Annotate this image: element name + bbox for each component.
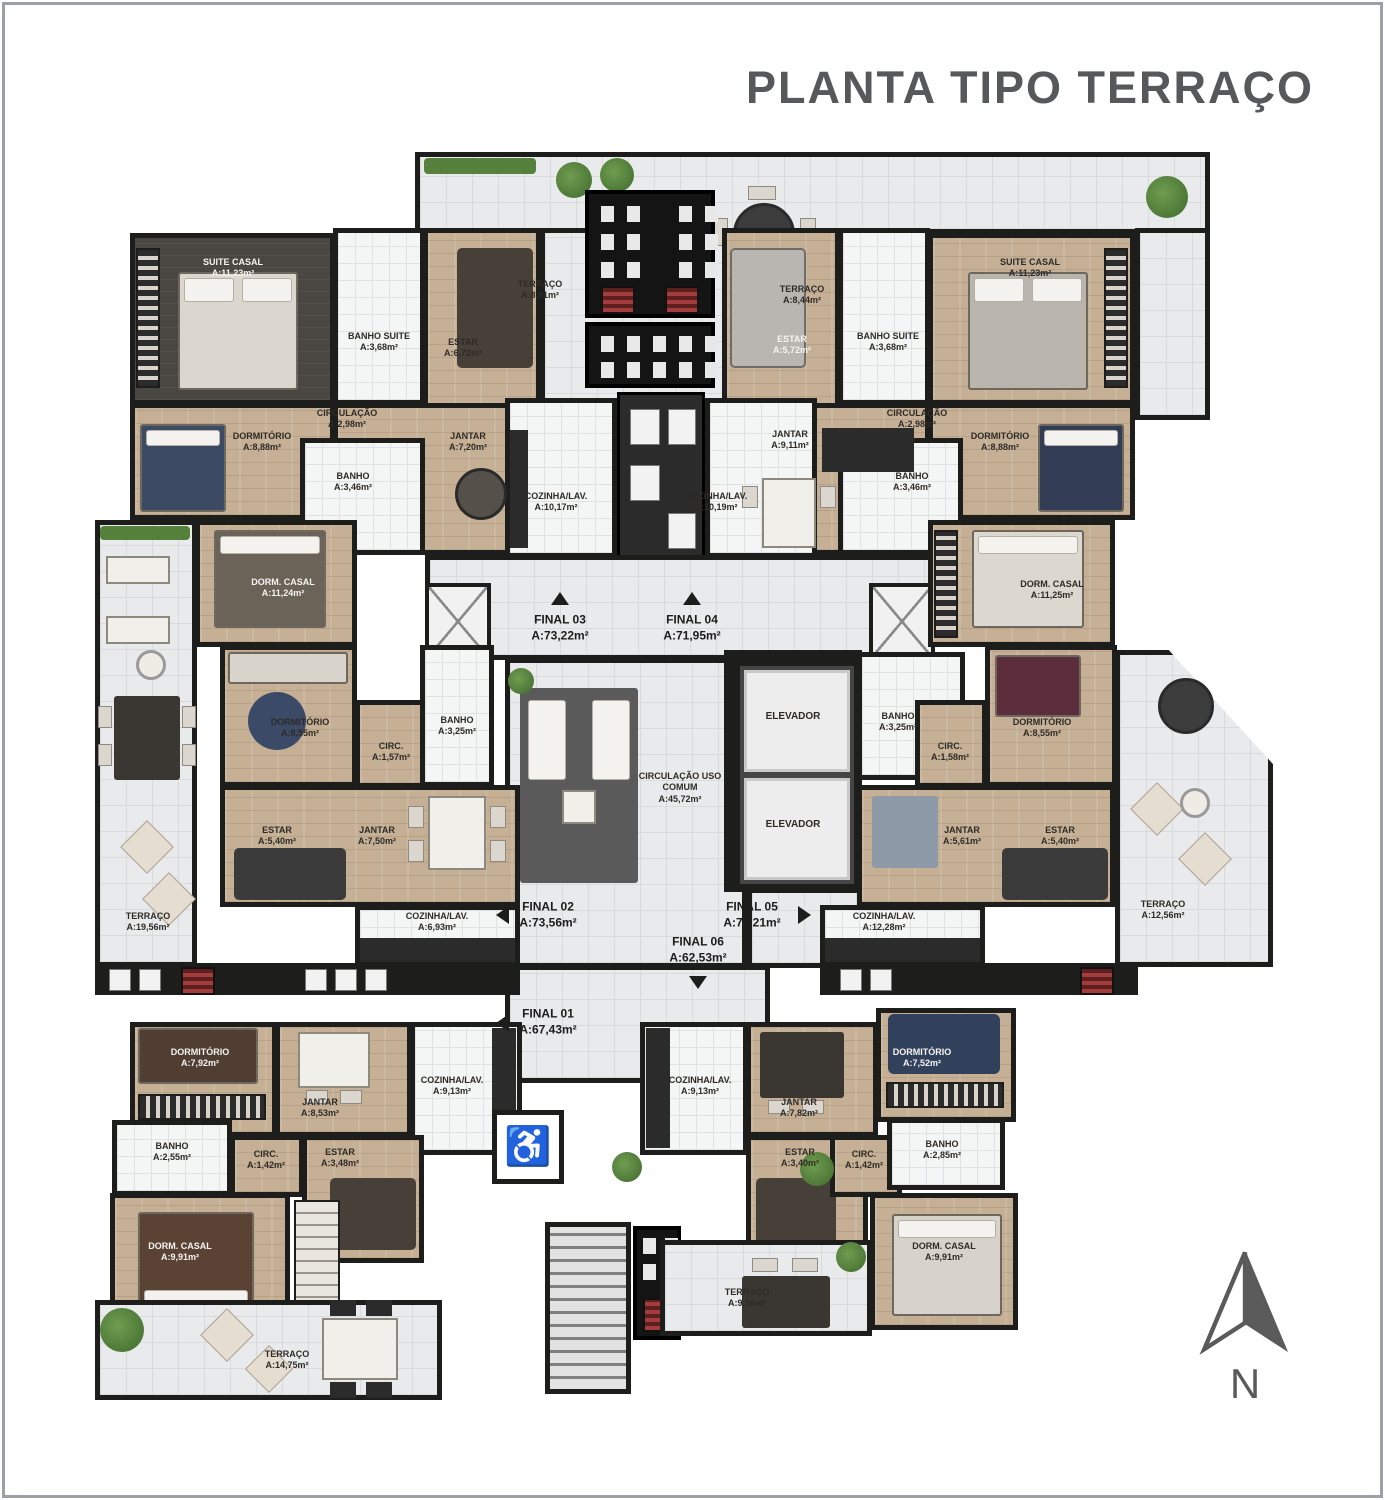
kitchen-counter [646, 1028, 670, 1148]
tree [600, 158, 634, 192]
grill [181, 967, 215, 995]
pillow [1032, 278, 1082, 302]
appliance [335, 969, 357, 991]
arrow-final-04 [683, 592, 701, 605]
label-cozinha-06: COZINHA/LAV.A:9,13m² [669, 1075, 732, 1098]
side-table [1180, 788, 1210, 818]
chair [98, 706, 112, 728]
chair [330, 1300, 356, 1316]
accessible-wc: ♿ [492, 1110, 564, 1184]
label-dormitorio-02: DORMITÓRIOA:8,55m² [271, 717, 330, 740]
label-banho-02: BANHOA:3,25m² [438, 715, 476, 738]
pillow [146, 430, 220, 446]
room-banho-suite-03 [333, 228, 425, 405]
label-dormitorio-05: DORMITÓRIOA:8,55m² [1013, 717, 1072, 740]
chair [340, 1090, 362, 1104]
label-circ-02: CIRC.A:1,57m² [372, 741, 410, 764]
bed-dormitorio-02 [228, 652, 348, 684]
sofa-01 [330, 1178, 416, 1250]
label-jantar-02: JANTARA:7,50m² [358, 825, 396, 848]
chair [408, 806, 424, 828]
tree [1146, 176, 1188, 218]
planter [100, 526, 190, 540]
bbq-module [585, 322, 715, 388]
terrace-table-01 [322, 1318, 398, 1380]
chair [98, 744, 112, 766]
appliance [305, 969, 327, 991]
kitchen-counter [825, 938, 980, 962]
arrow-final-06 [689, 976, 707, 989]
label-final-04: FINAL 04A:71,95m² [663, 612, 720, 643]
label-estar-03: ESTARA:6,72m² [444, 337, 482, 360]
chair [366, 1300, 392, 1316]
pillow [1044, 430, 1118, 446]
label-cozinha-03: COZINHA/LAV.A:10,17m² [525, 491, 588, 514]
label-estar-04: ESTARA:5,72m² [773, 334, 811, 357]
label-estar-01: ESTARA:3,48m² [321, 1147, 359, 1170]
label-terraco-04: TERRAÇOA:8,44m² [780, 284, 825, 307]
label-dorm-casal-06: DORM. CASALA:9,91m² [912, 1241, 976, 1264]
grill [601, 286, 635, 314]
lounger [106, 556, 170, 584]
service-wall-left [95, 963, 520, 995]
label-banho-suite-03: BANHO SUITEA:3,68m² [348, 331, 410, 354]
shaft [869, 583, 935, 660]
label-estar-05: ESTARA:5,40m² [1041, 825, 1079, 848]
dining-table-02 [428, 796, 486, 870]
label-final-05: FINAL 05A:70,21m² [723, 899, 780, 930]
label-terraco-03: TERRAÇOA:8,91m² [518, 279, 563, 302]
pillow [978, 536, 1078, 554]
pillow [242, 278, 292, 302]
label-dormitorio-01: DORMITÓRIOA:7,92m² [171, 1047, 230, 1070]
arrow-final-02 [496, 906, 509, 924]
label-terraco-05: TERRAÇOA:12,56m² [1141, 899, 1186, 922]
chair [182, 706, 196, 728]
appliance [840, 969, 862, 991]
room-banho-suite-04 [838, 228, 930, 405]
lounge-sofa [592, 700, 630, 780]
chair [330, 1382, 356, 1398]
chair [408, 840, 424, 862]
label-elevador-1: ELEVADOR [766, 711, 821, 724]
north-compass: N [1190, 1248, 1300, 1398]
label-dormitorio-03: DORMITÓRIOA:8,88m² [233, 431, 292, 454]
label-dorm-casal-01: DORM. CASALA:9,91m² [148, 1241, 212, 1264]
side-table [136, 650, 166, 680]
pillow [220, 536, 320, 554]
label-banho-05: BANHOA:3,25m² [879, 711, 917, 734]
label-final-01: FINAL 01A:67,43m² [519, 1006, 576, 1037]
north-arrow-icon [1190, 1248, 1300, 1358]
oven [630, 465, 660, 501]
sink [668, 513, 696, 549]
appliance [109, 969, 131, 991]
wardrobe [934, 530, 958, 638]
wardrobe [138, 1094, 266, 1120]
chair [182, 744, 196, 766]
label-jantar-04: JANTARA:9,11m² [771, 429, 809, 452]
appliance [870, 969, 892, 991]
chair [366, 1382, 392, 1398]
appliance [365, 969, 387, 991]
label-banho-06: BANHOA:2,85m² [923, 1139, 961, 1162]
grill [665, 286, 699, 314]
kitchen-counter [360, 938, 515, 962]
pillow [974, 278, 1024, 302]
wardrobe [136, 248, 160, 388]
label-cozinha-04: COZINHA/LAV.A:10,19m² [685, 491, 748, 514]
chair [748, 186, 776, 200]
wardrobe [1104, 248, 1128, 388]
service-wall-right [820, 963, 1138, 995]
lounge-sofa [528, 700, 566, 780]
arrow-final-05 [798, 906, 811, 924]
label-estar-02: ESTARA:5,40m² [258, 825, 296, 848]
bbq-grid [601, 206, 614, 222]
pillow [184, 278, 234, 302]
bed-dormitorio-05 [995, 655, 1081, 717]
terrace-top-right-sliver [1135, 228, 1210, 420]
label-final-03: FINAL 03A:73,22m² [531, 612, 588, 643]
tree [100, 1308, 144, 1352]
label-cozinha-02: COZINHA/LAV.A:6,93m² [406, 911, 469, 934]
label-terraco-01: TERRAÇOA:14,75m² [265, 1349, 310, 1372]
label-circulacao-03: CIRCULAÇÃOA:2,98m² [317, 408, 378, 431]
label-banho-03: BANHOA:3,46m² [334, 471, 372, 494]
plant [612, 1152, 642, 1182]
label-circ-06: CIRC.A:1,42m² [845, 1149, 883, 1172]
label-suite-casal-04: SUITE CASALA:11,23m² [1000, 257, 1060, 280]
label-suite-casal-03: SUITE CASALA:11,23m² [203, 257, 263, 280]
dining-table-05 [872, 796, 938, 868]
staircase [545, 1222, 631, 1394]
bbq-grid [601, 336, 614, 352]
label-circ-01: CIRC.A:1,42m² [247, 1149, 285, 1172]
cooktop [630, 409, 660, 445]
chair [490, 840, 506, 862]
arrow-final-03 [551, 592, 569, 605]
label-circulacao-uso-comum: CIRCULAÇÃO USO COMUMA:45,72m² [634, 771, 726, 805]
hall-final-03-04 [425, 555, 935, 660]
label-banho-04: BANHOA:3,46m² [893, 471, 931, 494]
label-jantar-06: JANTARA:7,82m² [780, 1097, 818, 1120]
label-dorm-casal-05: DORM. CASALA:11,25m² [1020, 579, 1084, 602]
grill [1080, 967, 1114, 995]
appliance [139, 969, 161, 991]
label-jantar-03: JANTARA:7,20m² [449, 431, 487, 454]
label-jantar-05: JANTARA:5,61m² [943, 825, 981, 848]
sofa-02 [234, 848, 346, 900]
label-banho-01: BANHOA:2,55m² [153, 1141, 191, 1164]
wardrobe [886, 1082, 1004, 1108]
chair [792, 1258, 818, 1272]
chair [820, 486, 836, 508]
kitchen-counter [510, 430, 528, 548]
chair [752, 1258, 778, 1272]
label-cozinha-01: COZINHA/LAV.A:9,13m² [421, 1075, 484, 1098]
dining-table-06 [760, 1032, 844, 1098]
label-terraco-06: TERRAÇOA:9,56m² [725, 1287, 770, 1310]
label-final-02: FINAL 02A:73,56m² [519, 899, 576, 930]
terrace-dining-02 [114, 696, 180, 780]
dining-table-01 [298, 1032, 370, 1088]
label-estar-06: ESTARA:3,40m² [781, 1147, 819, 1170]
label-circ-05: CIRC.A:1,58m² [931, 741, 969, 764]
sink [668, 409, 696, 445]
label-elevador-2: ELEVADOR [766, 819, 821, 832]
label-jantar-01: JANTARA:8,53m² [301, 1097, 339, 1120]
label-dorm-casal-02: DORM. CASALA:11,24m² [251, 577, 315, 600]
planter [424, 158, 536, 174]
lounger [106, 616, 170, 644]
dining-table-03 [455, 468, 507, 520]
plant [836, 1242, 866, 1272]
terrace-round-table [1158, 678, 1214, 734]
label-circulacao-04: CIRCULAÇÃOA:2,98m² [887, 408, 948, 431]
lounge-table [562, 790, 596, 824]
bbq-grid [643, 1238, 656, 1254]
pillow [898, 1220, 996, 1238]
sofa-05 [1002, 848, 1108, 900]
label-banho-suite-04: BANHO SUITEA:3,68m² [857, 331, 919, 354]
label-terraco-02: TERRAÇOA:19,56m² [126, 911, 171, 934]
chair [490, 806, 506, 828]
dining-table-04 [762, 478, 816, 548]
label-final-06: FINAL 06A:62,53m² [669, 934, 726, 965]
floor-plan: ♿ SUITE CASALA:11,23m² BANHO SUITEA:3,68… [0, 0, 1385, 1500]
label-cozinha-05: COZINHA/LAV.A:12,28m² [853, 911, 916, 934]
north-label: N [1190, 1360, 1300, 1408]
label-dormitorio-04: DORMITÓRIOA:8,88m² [971, 431, 1030, 454]
kitchen-island [822, 428, 914, 472]
label-dormitorio-06: DORMITÓRIOA:7,52m² [893, 1047, 952, 1070]
arrow-final-01 [496, 1014, 509, 1032]
bbq-module [585, 190, 715, 318]
plant [508, 668, 534, 694]
